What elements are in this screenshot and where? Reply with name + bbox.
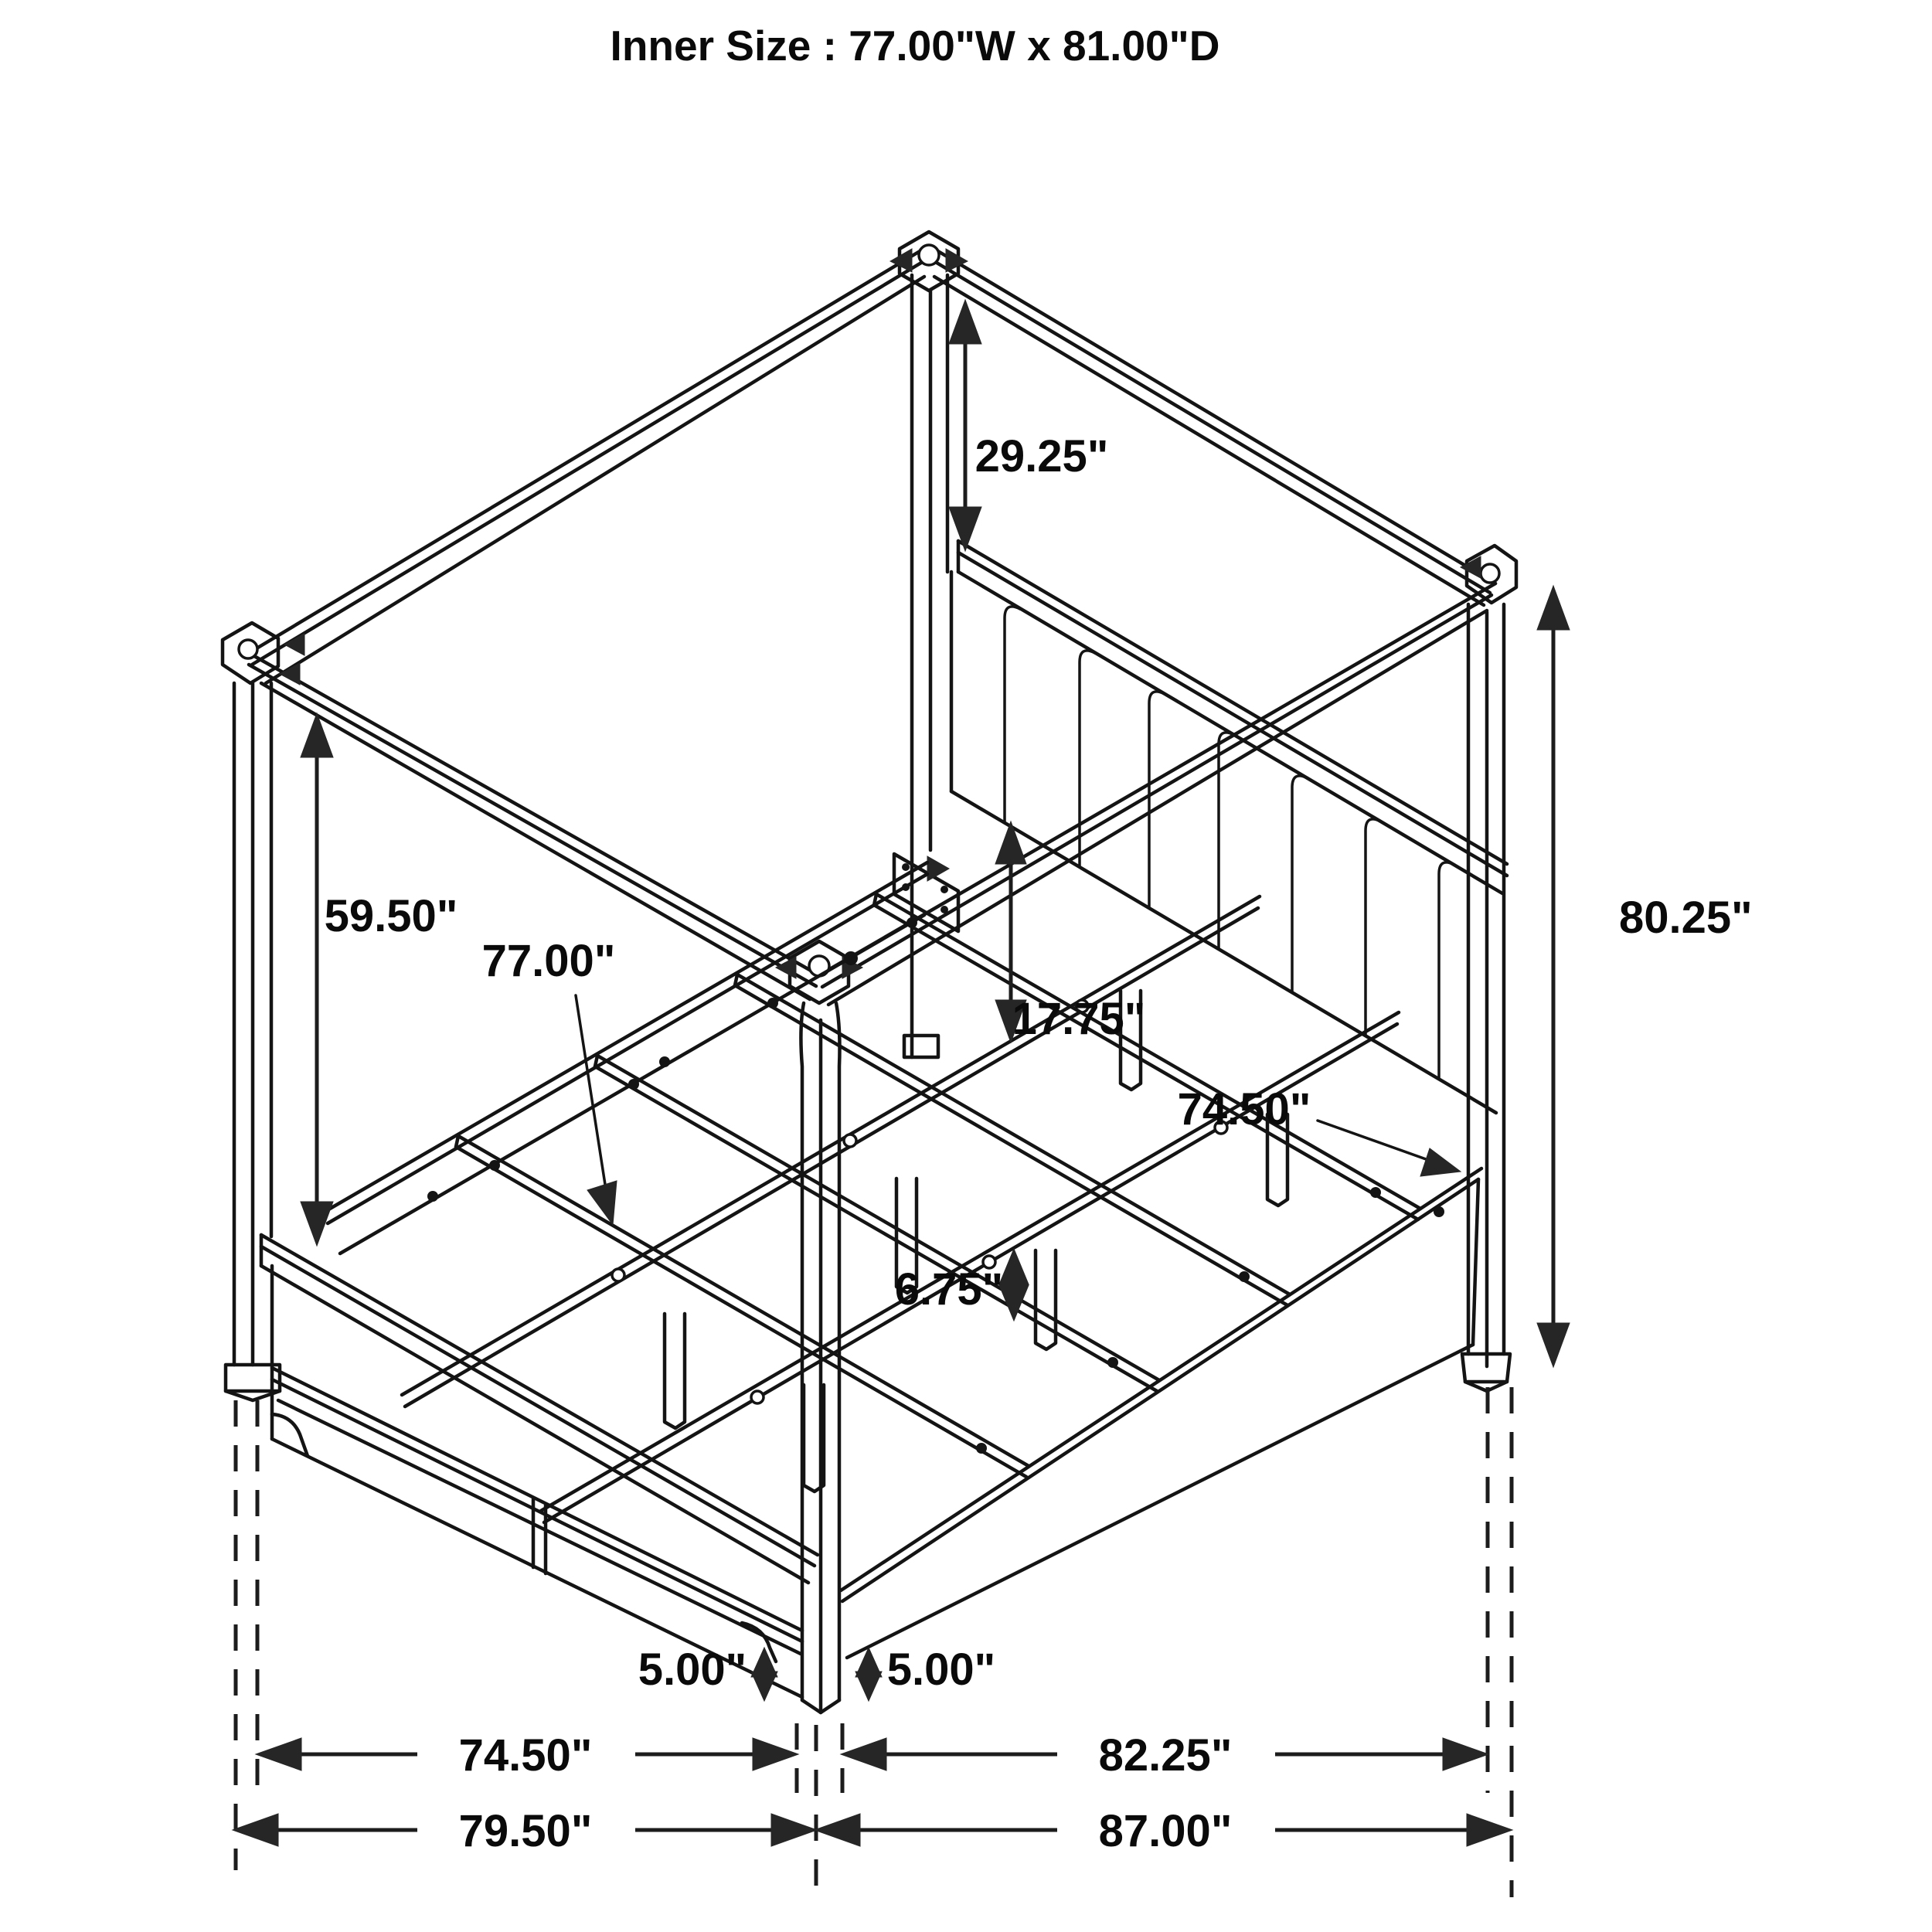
dim-74-50-mid-label: 74.50" [1178,1084,1311,1134]
dim-overall-depth: 87.00" [815,1806,1512,1856]
dim-59-50-label: 59.50" [325,891,458,941]
dim-overall-width: 79.50" [233,1806,817,1856]
canopy-corner-blocks [223,232,1516,1003]
dim-5-00-left-label: 5.00" [638,1645,747,1695]
dim-17-75-label: 17.75" [1012,994,1146,1044]
dim-siderail-span: 82.25" [841,1730,1488,1781]
extension-lines [236,1387,1512,1897]
right-post [1462,604,1510,1391]
dim-canopy-underside: 59.50" [301,713,457,1246]
bed-diagram-canvas: Inner Size : 77.00"W x 81.00"D [0,0,1932,1932]
support-rails [402,896,1399,1522]
dim-footboard-span: 74.50" [256,1730,798,1781]
dim-29-25-label: 29.25" [975,431,1109,481]
dim-siderail-floor-gap: 5.00" [855,1645,995,1701]
dim-87-00-label: 87.00" [1099,1806,1233,1856]
canopy-bed-dimension-diagram: Inner Size : 77.00"W x 81.00"D [0,0,1932,1932]
dim-74-50-bottom-label: 74.50" [459,1730,593,1781]
support-legs [665,991,1287,1492]
dim-77-00-label: 77.00" [482,936,616,986]
dim-footboard-floor-gap: 5.00" [638,1645,777,1701]
dim-79-50-label: 79.50" [459,1806,593,1856]
dim-5-00-right-label: 5.00" [887,1645,995,1695]
dim-platform-height: 17.75" [995,821,1145,1044]
dim-82-25-label: 82.25" [1099,1730,1233,1781]
dim-overall-height: 80.25" [1537,586,1753,1367]
diagram-title: Inner Size : 77.00"W x 81.00"D [611,22,1220,70]
footboard [261,1235,818,1697]
dim-6-75-label: 6.75" [895,1264,1003,1315]
rear-post [904,275,947,1057]
dim-80-25-label: 80.25" [1619,893,1753,943]
